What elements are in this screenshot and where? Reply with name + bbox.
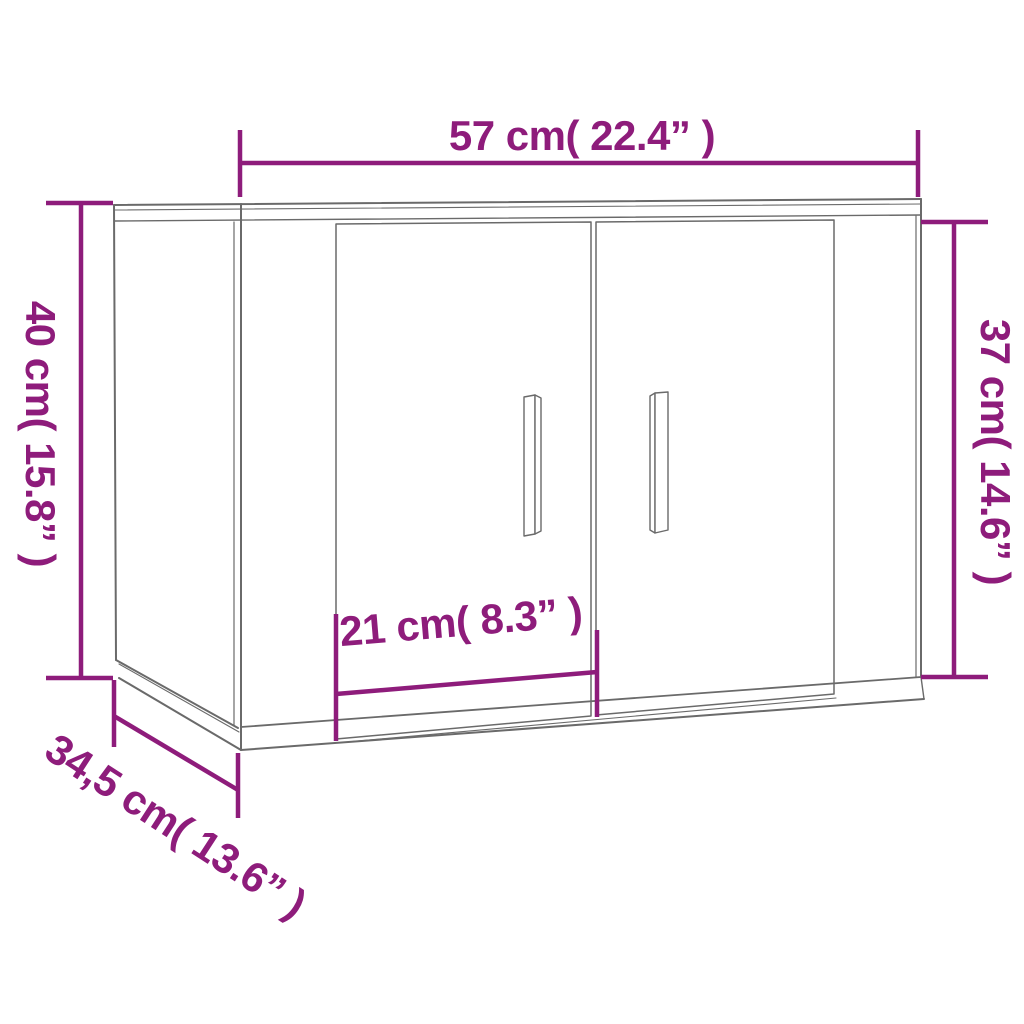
left-edge	[114, 205, 116, 660]
left-height-dimension: 40 cm( 15.8” )	[17, 203, 113, 678]
width-dim-label: 57 cm( 22.4” )	[449, 112, 715, 159]
door-width-dimension: 21 cm( 8.3” )	[336, 588, 597, 741]
door-width-dim-label: 21 cm( 8.3” )	[338, 588, 584, 655]
door-bottom-shadow-line	[336, 698, 836, 743]
width-dimension: 57 cm( 22.4” )	[240, 112, 918, 197]
depth-dimension: 34,5 cm( 13.6” )	[37, 680, 314, 927]
cabinet-drawing	[114, 199, 924, 750]
right-height-dimension: 37 cm( 14.6” )	[921, 222, 1019, 677]
left-handle-side	[535, 395, 541, 534]
dimension-diagram: 57 cm( 22.4” ) 40 cm( 15.8” ) 37 cm( 14.…	[0, 0, 1024, 1024]
door-width-dim-line	[336, 672, 597, 694]
bottom-panel-right-edge	[921, 677, 924, 699]
left-bottom-edge	[116, 660, 238, 728]
cabinet-top-panel	[114, 199, 921, 221]
front-bottom-edge	[241, 677, 921, 727]
cabinet-dimension-drawing: 57 cm( 22.4” ) 40 cm( 15.8” ) 37 cm( 14.…	[0, 0, 1024, 1024]
left-bottom-inner-edge	[119, 664, 239, 732]
cabinet-left-side	[114, 205, 241, 750]
left-door	[336, 222, 591, 739]
left-bottom-panel-edge	[119, 678, 241, 750]
right-height-dim-label: 37 cm( 14.6” )	[972, 319, 1019, 585]
top-back-edge	[114, 199, 921, 205]
right-handle-side	[650, 393, 655, 533]
cabinet-doors	[336, 220, 836, 743]
left-height-dim-label: 40 cm( 15.8” )	[17, 301, 64, 567]
left-handle-front	[524, 395, 535, 536]
right-door	[596, 220, 834, 715]
right-handle-front	[655, 392, 668, 533]
